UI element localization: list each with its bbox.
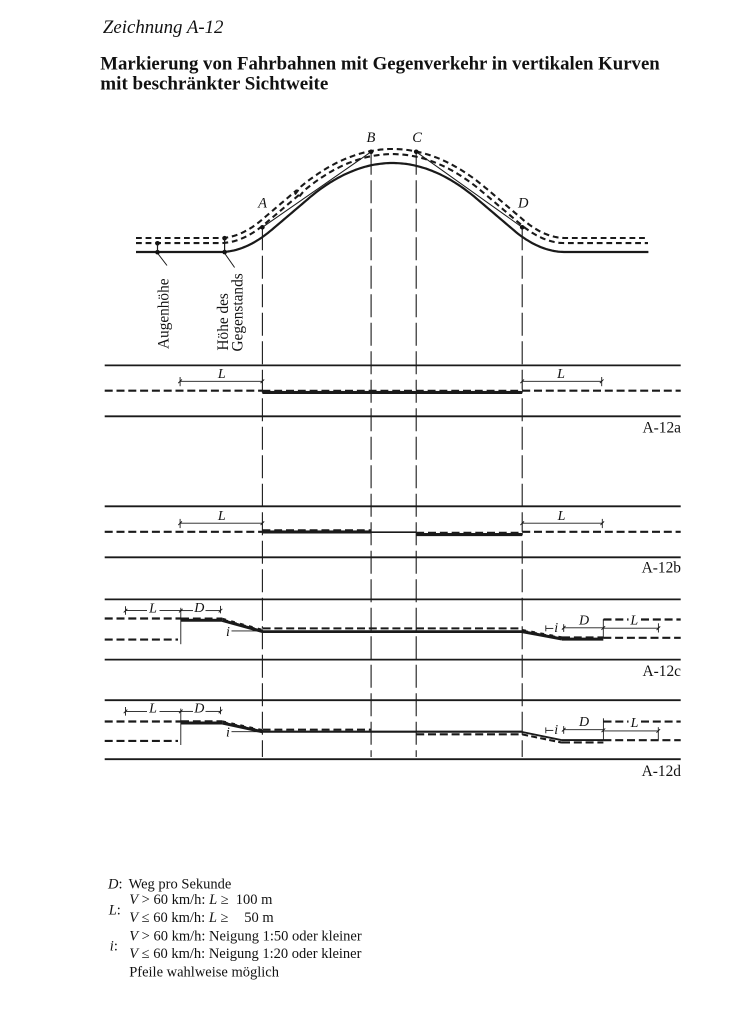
svg-text:A-12d: A-12d [642,763,682,780]
svg-text:i:: i: [110,939,118,955]
svg-text:V ≤ 60 km/h: Neigung 1:20 oder: V ≤ 60 km/h: Neigung 1:20 oder kleiner [129,946,361,962]
svg-text:D: D [578,715,589,730]
svg-text:C: C [412,130,422,146]
svg-text:V ≤ 60 km/h: L ≥50 m: V ≤ 60 km/h: L ≥50 m [129,910,274,926]
svg-text:L: L [630,716,639,731]
svg-text:L: L [556,367,565,382]
svg-text:L: L [629,614,638,629]
svg-text:i: i [554,621,558,636]
svg-text:A-12b: A-12b [642,560,682,577]
svg-text:L: L [217,509,226,524]
svg-text:D: D [193,601,204,616]
svg-text:A-12c: A-12c [643,663,682,680]
svg-text:D:: D: [107,876,123,892]
svg-text:V > 60 km/h: Neigung 1:50 oder: V > 60 km/h: Neigung 1:50 oder kleiner [129,929,362,945]
svg-text:A-12a: A-12a [643,420,682,437]
svg-text:D: D [517,196,529,212]
svg-text:Gegenstands: Gegenstands [230,273,247,351]
svg-text:B: B [366,130,375,146]
svg-text:D: D [578,613,589,628]
svg-text:mit beschränkter Sichtweite: mit beschränkter Sichtweite [100,74,328,95]
svg-text:V > 60 km/h: L ≥100 m: V > 60 km/h: L ≥100 m [129,892,273,908]
svg-text:A: A [257,195,267,211]
svg-text:L: L [148,702,157,717]
svg-text:L: L [557,509,566,524]
svg-text:Augenhöhe: Augenhöhe [155,278,172,349]
svg-text:D: D [193,702,204,717]
svg-text:Weg pro Sekunde: Weg pro Sekunde [129,876,232,892]
svg-text:i: i [226,625,230,640]
svg-text:Zeichnung A-12: Zeichnung A-12 [103,17,224,38]
svg-text:L: L [148,602,157,617]
svg-text:L: L [217,367,226,382]
svg-text:i: i [226,726,230,741]
svg-text:L:: L: [108,902,121,918]
svg-text:i: i [554,723,558,738]
svg-text:Markierung von Fahrbahnen mit: Markierung von Fahrbahnen mit Gegenverke… [100,53,660,74]
svg-text:Pfeile wahlweise möglich: Pfeile wahlweise möglich [129,965,280,981]
